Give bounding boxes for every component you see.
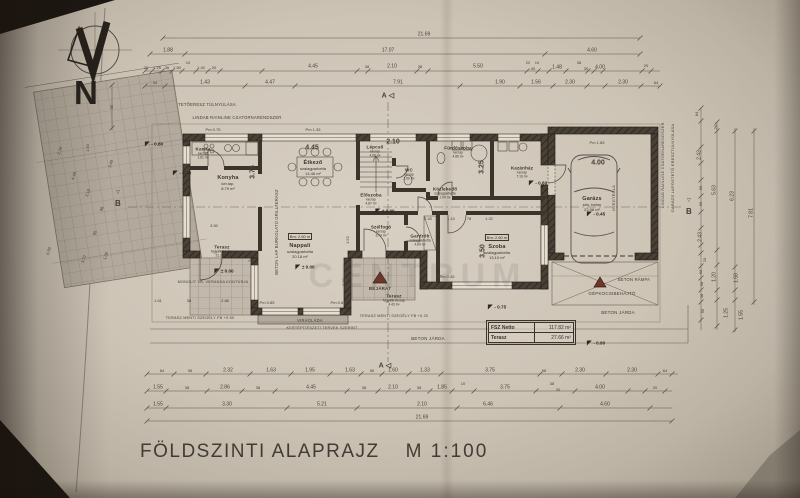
room-area: 3.74 m² xyxy=(371,234,391,238)
page-title: FÖLDSZINTI ALAPRAJZ xyxy=(140,441,380,462)
room-label-szoba: Bm: 2.60 mSzobaszalagparketta13.10 m² xyxy=(484,226,510,260)
level-marker: - 0.90 xyxy=(587,341,605,346)
room-area: 14.46 m² xyxy=(300,171,326,176)
ramp-label: BETON RÁMPA xyxy=(618,278,650,282)
table-row: FSZ Netto 117.82 m² xyxy=(489,323,573,333)
room-area: 8.79 m² xyxy=(217,186,238,191)
dimension-label: 21.69 xyxy=(418,33,431,38)
dimension-label: 2.43 xyxy=(699,232,704,242)
dimension-label: 4.00 xyxy=(595,66,605,71)
dimension-label: 38 xyxy=(417,386,421,390)
dimension-label: 20 xyxy=(212,66,216,70)
driveway xyxy=(552,262,658,305)
dimension-label: 21.69 xyxy=(416,416,429,421)
dimension-label: 64 xyxy=(663,369,667,373)
level-marker: ± 0.00 xyxy=(214,269,233,274)
dimension-label: 64 xyxy=(160,369,164,373)
section-b-left-letter: B xyxy=(115,200,121,208)
dimension-label: 6.46 xyxy=(483,403,493,408)
dimension-label: 20 xyxy=(144,66,148,70)
garage-roof-note: GARÁZS LAPOSTETŐ ERESZTÚLNYÚLÁSA xyxy=(671,124,675,213)
dimension-label: 38 xyxy=(418,65,422,69)
dimension-label: 2.30 xyxy=(575,369,585,374)
dimension-label: 38 xyxy=(550,382,554,386)
room-area: 4.86 m² xyxy=(444,155,472,159)
dimension-label: 10 xyxy=(461,382,465,386)
dimension-label: 98 xyxy=(188,369,192,373)
summary-label: Terasz xyxy=(489,333,535,342)
dimension-label: 4.45 xyxy=(308,65,318,70)
bottom-edge-shadow xyxy=(0,480,800,498)
dimension-label: 1.33 xyxy=(420,369,430,374)
scanned-floor-plan: 21.691.8817.074.60201.25361.50101.40204.… xyxy=(0,0,800,498)
dimension-label: 38 xyxy=(700,294,704,298)
dimension-label: 2.10 xyxy=(388,386,398,391)
dimension-label: 2.86 xyxy=(221,299,229,303)
section-b-right-letter: B xyxy=(686,208,692,216)
dimension-label: 38 xyxy=(187,299,191,303)
room-area: 4.84 m² xyxy=(409,243,430,247)
garden-plan-note: KERTÉPÍTÉSZETI TERVEK SZERINT xyxy=(287,327,358,331)
dimension-label: 38 xyxy=(362,386,366,390)
dimension-label: 2.30 xyxy=(618,81,628,86)
level-marker: ± 0.00 xyxy=(375,209,394,214)
level-marker: - 0.80 xyxy=(145,142,163,147)
room-label-gardrob: Gardróbszalagparketta4.84 m² xyxy=(409,234,430,247)
dimension-label: 95 xyxy=(110,105,114,109)
dimension-label: 38 xyxy=(256,386,260,390)
dimension-label: 4.00 xyxy=(591,160,605,167)
room-area: 1.50 m² xyxy=(403,177,414,181)
room-area: 7.16 m² xyxy=(511,175,533,179)
dimension-label: 3.75 xyxy=(500,386,510,391)
dimension-label: 95 xyxy=(701,309,705,313)
section-b-left: ▽ xyxy=(116,191,120,196)
dimension-label: 3.75 xyxy=(250,165,257,179)
right-edge-shadow xyxy=(774,0,800,498)
room-label-terasz-deli: Teraszfagyálló ker.lap4.43 m² xyxy=(383,294,405,307)
dimension-label: 4.47 xyxy=(265,81,275,86)
dimension-label: 20 xyxy=(644,64,648,68)
dimension-label: 3.30 xyxy=(222,403,232,408)
room-height: Bm: 2.60 m xyxy=(288,233,312,240)
dimension-label: 69 xyxy=(699,186,703,190)
dimension-label: 1.58 xyxy=(735,273,740,283)
dimension-label: 78 xyxy=(467,217,471,221)
glass-brick-strip xyxy=(548,165,555,195)
dimension-label: 38 xyxy=(365,65,369,69)
dimension-label: 4.00 xyxy=(595,386,605,391)
dimension-label: 30 xyxy=(584,67,588,71)
room-label-eloszoba: Előszobaker.lap4.87 m² xyxy=(360,193,381,206)
dimension-label: 1.32 xyxy=(485,217,493,221)
summary-value: 117.82 m² xyxy=(535,323,573,332)
room-label-terasz-nyugati: Teraszfagyálló ker.lap21.28 m² xyxy=(211,245,233,258)
gutter-note-right: LINDAB RAINLINE CSATORNARENDSZER xyxy=(661,122,665,207)
terrace-edge-note-2: TERASZ MENTI SZEGÉLY FB +0.20 xyxy=(360,315,428,319)
room-height: Bm: 2.60 m xyxy=(485,234,509,241)
grill-terrace-note: BETON LAP BURKOLATÚ GRILLTERASZ xyxy=(275,189,279,274)
dimension-label: 69 xyxy=(699,202,703,206)
dimension-label: 98 xyxy=(700,282,704,286)
dimension-label: 4.45 xyxy=(306,386,316,391)
room-label-furdoszoba: Fürdőszobaker.lap4.86 m² xyxy=(444,146,472,159)
driveway-label: GÉPKOCSIBEHAJTÓ xyxy=(588,292,635,297)
dimension-lines xyxy=(110,36,757,424)
dimension-label: 1.55 xyxy=(740,310,745,320)
room-label-kamra: Kamraker.lap1.81 m² xyxy=(195,147,210,160)
dimension-label: 38 xyxy=(185,386,189,390)
dimension-label: 30 xyxy=(556,388,560,392)
dimension-label: 94 xyxy=(153,81,157,85)
dimension-label: Pm 0.85 xyxy=(260,301,275,305)
dimension-label: 4.60 xyxy=(600,403,610,408)
dimension-label: 4.45 xyxy=(305,145,319,152)
room-label-lepcso: Lépcsőker.lap4.06 m² xyxy=(367,145,384,158)
dimension-label: 5.21 xyxy=(317,403,327,408)
dimension-label: 20 xyxy=(714,125,718,129)
level-marker: - 0.45 xyxy=(587,212,605,217)
dimension-label: 3.25 xyxy=(479,160,486,174)
room-area: 21.28 m² xyxy=(211,254,233,258)
dimension-label: 1.40 xyxy=(197,66,205,70)
veranda-note: MONOLIT VB. VERANDA KONTÚRJA xyxy=(178,281,249,285)
summary-label: FSZ Netto xyxy=(489,323,535,332)
dimension-label: 36 xyxy=(165,66,169,70)
room-label-kazanhaz: Kazánházker.lap7.16 m² xyxy=(511,166,533,179)
dimension-label: 2.10 xyxy=(417,403,427,408)
room-label-nappali: Bm: 2.60 mNappaliszalagparketta20.18 m² xyxy=(287,225,313,259)
area-summary-table: FSZ Netto 117.82 m² Terasz 27.66 m² xyxy=(488,322,574,343)
dimension-label: Pm 0.85 xyxy=(331,301,346,305)
dimension-label: 84 xyxy=(695,112,699,116)
room-label-wc: WCker.lap1.50 m² xyxy=(403,168,414,181)
drawing-scale: M 1:100 xyxy=(406,441,489,462)
dimension-label: 60 xyxy=(699,270,703,274)
gutter-note-top: LINDAB RAINLINE CSATORNARENDSZER xyxy=(192,116,281,120)
room-area: 13.10 m² xyxy=(484,255,510,260)
room-label-kozlekedo: Közlekedőszalagparketta2.94 m² xyxy=(433,187,457,200)
dimension-label: 2.10 xyxy=(386,139,400,146)
dimension-label: 2.40 xyxy=(424,217,432,221)
room-area: 20.18 m² xyxy=(287,254,313,259)
room-label-konyha: Konyhaker.lap.8.79 m² xyxy=(217,175,238,191)
dimension-label: 10 xyxy=(186,61,190,65)
room-area: 4.43 m² xyxy=(383,303,405,307)
room-area: 4.06 m² xyxy=(367,154,384,158)
dimension-label: 1.55 xyxy=(153,403,163,408)
plan-linework xyxy=(0,0,800,498)
dimension-label: 1.90 xyxy=(495,81,505,86)
dimension-label: 10 xyxy=(535,61,539,65)
dimension-label: 40 xyxy=(531,67,535,71)
room-label-garazs: Garázssim. beton22.98 m² xyxy=(582,196,602,212)
dimension-label: 1.85 xyxy=(437,386,447,391)
driveway-triangle-icon xyxy=(594,277,606,287)
dimension-label: 1.25 xyxy=(153,66,161,70)
dimension-label: 22 xyxy=(526,61,530,65)
sidewalk-label-1: BETON JÁRDA xyxy=(411,337,445,342)
dimension-label: 50 xyxy=(370,369,374,373)
dimension-label: 5.63 xyxy=(713,185,718,195)
dimension-label: 2.93 xyxy=(248,254,252,262)
dimension-label: 1.95 xyxy=(305,369,315,374)
dimension-label: 17.07 xyxy=(382,49,395,54)
section-a-bottom: A ◁ xyxy=(379,363,392,370)
dimension-label: Pm 1.35 xyxy=(306,128,321,132)
dimension-label: 20 xyxy=(703,258,707,262)
dimension-label: 1.52 xyxy=(346,236,350,244)
dimension-label: 1.50 xyxy=(173,66,181,70)
boiler-fixtures xyxy=(498,142,527,151)
level-marker: - 0.75 xyxy=(488,305,506,310)
level-marker: ± 0.00 xyxy=(295,265,314,270)
dimension-label: 6.23 xyxy=(731,191,736,201)
table-row: Terasz 27.66 m² xyxy=(489,333,573,342)
dimension-label: 1.50 xyxy=(86,144,90,152)
dimension-label: 98 xyxy=(542,369,546,373)
dimension-label: 3.75 xyxy=(485,369,495,374)
watermark: CENTRUM xyxy=(309,259,528,293)
dimension-label: 2.43 xyxy=(698,150,703,160)
dimension-label: 1.56 xyxy=(531,81,541,86)
room-area: 1.81 m² xyxy=(195,156,210,160)
dimension-label: 1.20 xyxy=(713,272,718,282)
dimension-label: 2.30 xyxy=(627,369,637,374)
dimension-label: 1.55 xyxy=(153,386,163,391)
dimension-label: 1.10 xyxy=(447,217,455,221)
dimension-label: 5.50 xyxy=(473,65,483,70)
dimension-label: 1.88 xyxy=(163,49,173,54)
dimension-label: 1.43 xyxy=(200,81,210,86)
dimension-label: 1.48 xyxy=(552,66,562,71)
level-marker: - 0.70 xyxy=(173,171,191,176)
dimension-label: 2.32 xyxy=(223,369,233,374)
glass-brick-note: ÜVEGTÉGLA xyxy=(612,185,616,211)
room-area: 2.94 m² xyxy=(433,196,457,200)
room-label-etkezo: Étkezőszalagparketta14.46 m² xyxy=(300,160,326,176)
section-a-top: A ◁ xyxy=(382,93,395,100)
dimension-label: 7.81 xyxy=(750,208,755,218)
roof-overhang-note: TETŐERESZ TÚLNYÚLÁSA xyxy=(178,103,236,107)
summary-value: 27.66 m² xyxy=(535,333,573,342)
dimension-label: 1.61 xyxy=(154,299,162,303)
dimension-label: 3.50 xyxy=(210,224,218,228)
dimension-label: 1.25 xyxy=(725,308,730,318)
title-block: FÖLDSZINTI ALAPRAJZM 1:100 xyxy=(140,441,488,463)
dimension-label: 20 xyxy=(653,386,657,390)
dimension-label: Pm 1.85 xyxy=(590,141,605,145)
paper-crease xyxy=(440,0,454,498)
north-letter: N xyxy=(74,74,98,112)
dimension-label: 2.30 xyxy=(565,81,575,86)
dimension-label: 4.60 xyxy=(587,49,597,54)
terrace-edge-note-1: TERASZ MENTI SZEGÉLY FB +0.50 xyxy=(166,317,234,321)
dimension-label: 2.10 xyxy=(387,65,397,70)
section-b-right: ▽ xyxy=(687,199,691,204)
sidewalk-label-2: BETON JÁRDA xyxy=(601,311,635,316)
dimension-label: 1.63 xyxy=(345,369,355,374)
dimension-label: 7.91 xyxy=(393,81,403,86)
flower-box-label: VIRÁGLÁDA xyxy=(297,319,323,323)
stairs xyxy=(360,152,392,192)
level-marker: - 0.60 xyxy=(529,181,547,186)
dimension-label: 2.86 xyxy=(220,386,230,391)
dimension-label: 38 xyxy=(577,61,581,65)
dimension-label: Pm 0.75 xyxy=(206,128,221,132)
room-label-szelfogo: Szélfogóker.lap3.74 m² xyxy=(371,225,391,238)
dimension-label: 1.63 xyxy=(266,369,276,374)
dimension-label: 64 xyxy=(654,81,658,85)
room-area: 4.87 m² xyxy=(360,202,381,206)
